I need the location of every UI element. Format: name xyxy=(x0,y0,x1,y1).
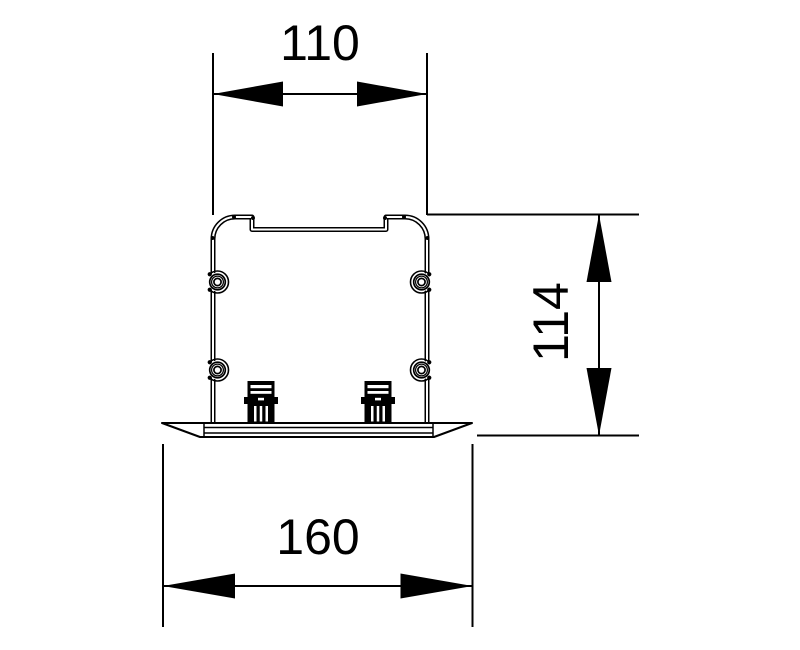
dimension-right-height-label: 114 xyxy=(523,282,579,362)
front-plate-outline xyxy=(162,423,472,437)
terminal-post-right xyxy=(361,381,395,423)
dimension-right-height: 114 xyxy=(427,215,639,436)
front-plate xyxy=(162,423,472,437)
spring-clip-bottom-left xyxy=(208,359,229,381)
arrowhead-left xyxy=(213,82,283,107)
technical-drawing: 110 114 160 xyxy=(0,0,800,650)
arrowhead-down xyxy=(587,368,612,436)
arrowhead-left xyxy=(163,574,235,599)
drawing-page: 110 114 160 xyxy=(0,0,800,650)
arrowhead-right xyxy=(357,82,427,107)
arrowhead-right xyxy=(401,574,473,599)
arrowhead-up xyxy=(587,215,612,283)
dimension-bottom-width-label: 160 xyxy=(276,509,359,565)
dimension-top-width-label: 110 xyxy=(280,15,360,71)
bracket-body xyxy=(211,215,430,423)
bracket-profile-inner xyxy=(213,217,427,423)
spring-clip-top-left xyxy=(208,271,229,293)
spring-clip-top-right xyxy=(411,271,432,293)
dimension-top-width: 110 xyxy=(213,15,427,215)
dimension-bottom-width: 160 xyxy=(163,444,473,627)
spring-clip-bottom-right xyxy=(411,359,432,381)
terminal-post-left xyxy=(244,381,278,423)
bracket-profile-outer xyxy=(213,217,427,423)
